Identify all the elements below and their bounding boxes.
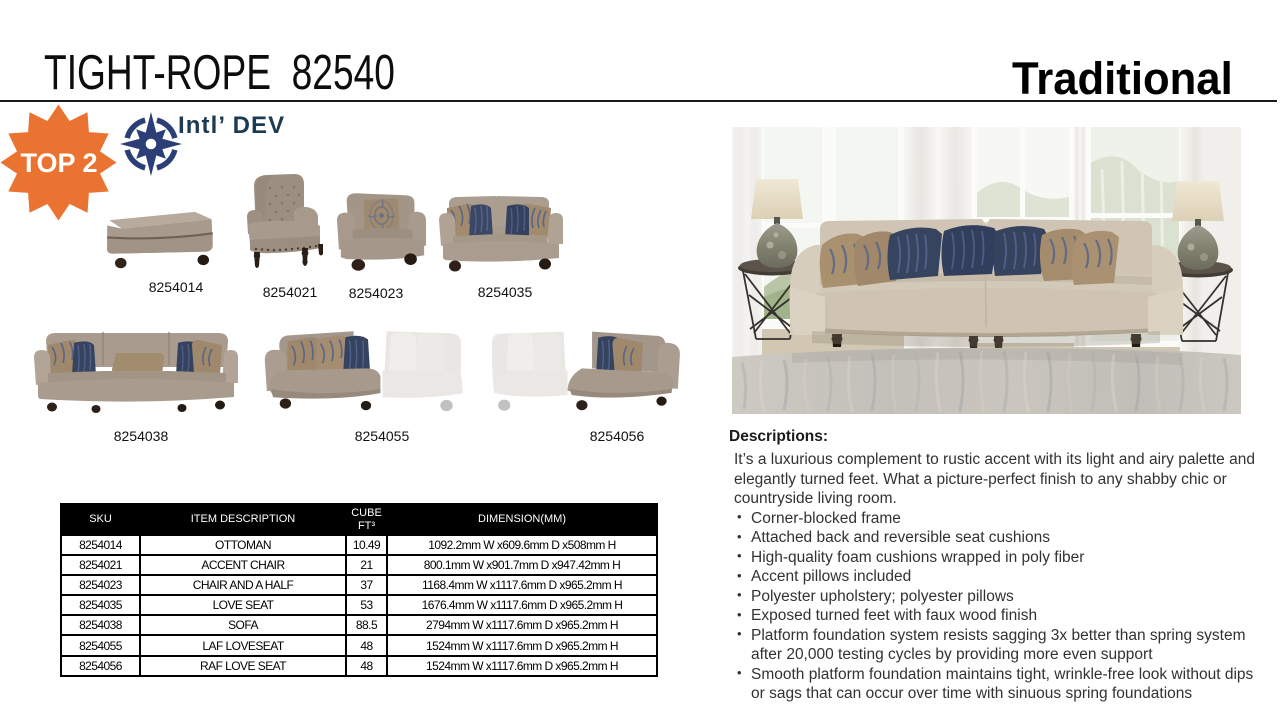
- svg-text:TOP 2: TOP 2: [20, 148, 97, 178]
